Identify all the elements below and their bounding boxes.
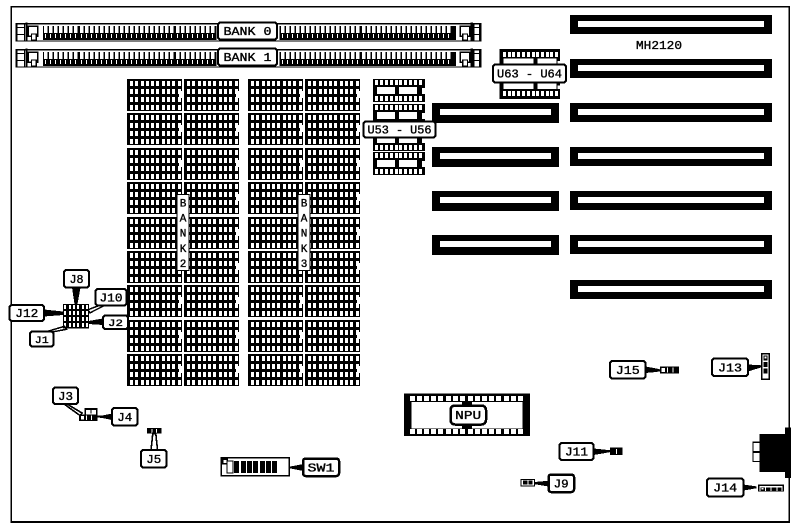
- svg-text:J10: J10: [100, 292, 123, 305]
- svg-text:B: B: [301, 199, 308, 211]
- svg-text:J9: J9: [554, 478, 569, 491]
- svg-text:J2: J2: [108, 318, 123, 330]
- svg-text:3: 3: [301, 259, 308, 271]
- svg-text:U53 - U56: U53 - U56: [368, 125, 432, 138]
- svg-text:J14: J14: [713, 483, 737, 496]
- svg-text:J11: J11: [565, 447, 588, 460]
- svg-text:BANK 1: BANK 1: [224, 52, 272, 65]
- svg-text:BANK 0: BANK 0: [224, 26, 272, 39]
- svg-text:NPU: NPU: [455, 410, 481, 423]
- svg-text:A: A: [301, 214, 308, 226]
- svg-text:N: N: [180, 229, 187, 241]
- svg-text:K: K: [180, 244, 187, 256]
- svg-text:J3: J3: [58, 391, 73, 404]
- svg-text:U63 - U64: U63 - U64: [497, 69, 562, 82]
- svg-text:J13: J13: [718, 362, 742, 375]
- svg-text:J12: J12: [15, 308, 38, 321]
- svg-text:2: 2: [180, 259, 187, 271]
- svg-text:K: K: [301, 244, 308, 256]
- svg-text:J5: J5: [146, 454, 161, 467]
- svg-text:A: A: [180, 214, 187, 226]
- svg-text:J15: J15: [616, 365, 640, 378]
- svg-text:N: N: [301, 229, 308, 241]
- svg-text:J8: J8: [70, 274, 84, 287]
- svg-text:MH2120: MH2120: [636, 39, 682, 53]
- svg-text:J4: J4: [117, 412, 132, 425]
- svg-text:J1: J1: [35, 335, 49, 347]
- svg-text:SW1: SW1: [308, 462, 335, 475]
- svg-text:B: B: [180, 199, 187, 211]
